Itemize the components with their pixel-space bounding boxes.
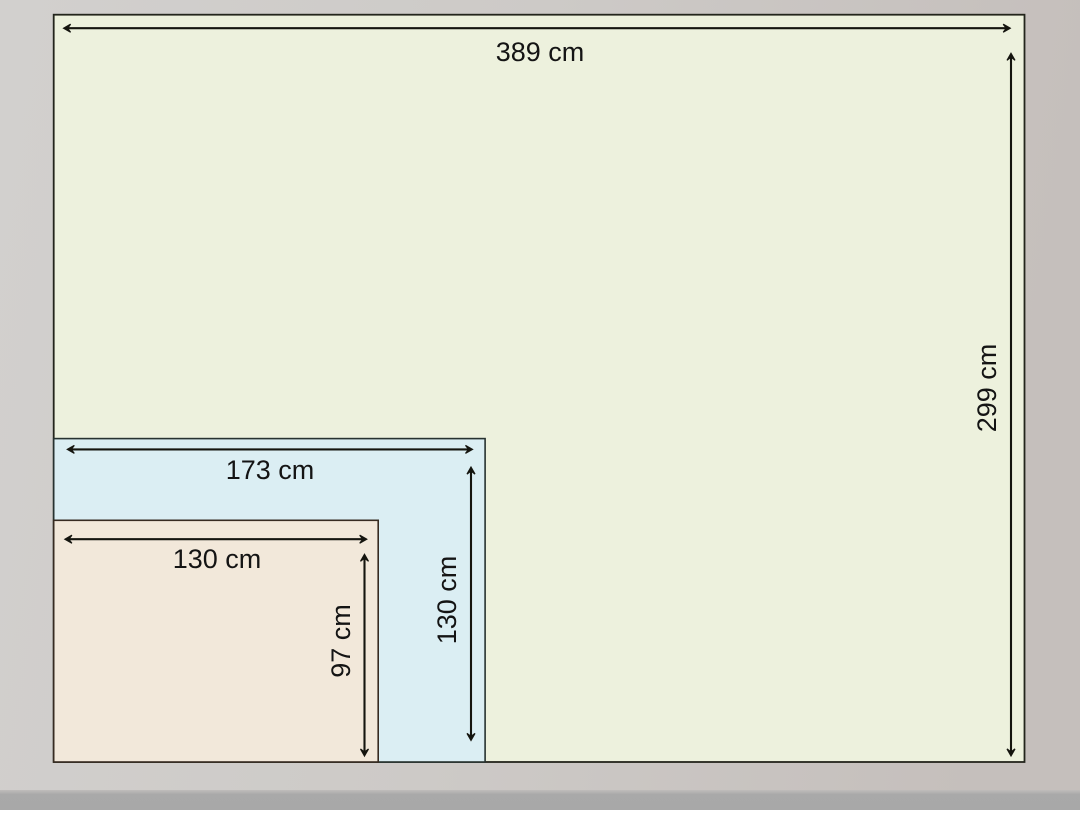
svg-text:130 cm: 130 cm — [432, 556, 462, 645]
svg-text:130 cm: 130 cm — [173, 544, 262, 574]
svg-text:97 cm: 97 cm — [326, 604, 356, 678]
svg-text:173 cm: 173 cm — [226, 455, 315, 485]
svg-text:389 cm: 389 cm — [496, 37, 585, 67]
svg-text:299 cm: 299 cm — [972, 344, 1002, 433]
